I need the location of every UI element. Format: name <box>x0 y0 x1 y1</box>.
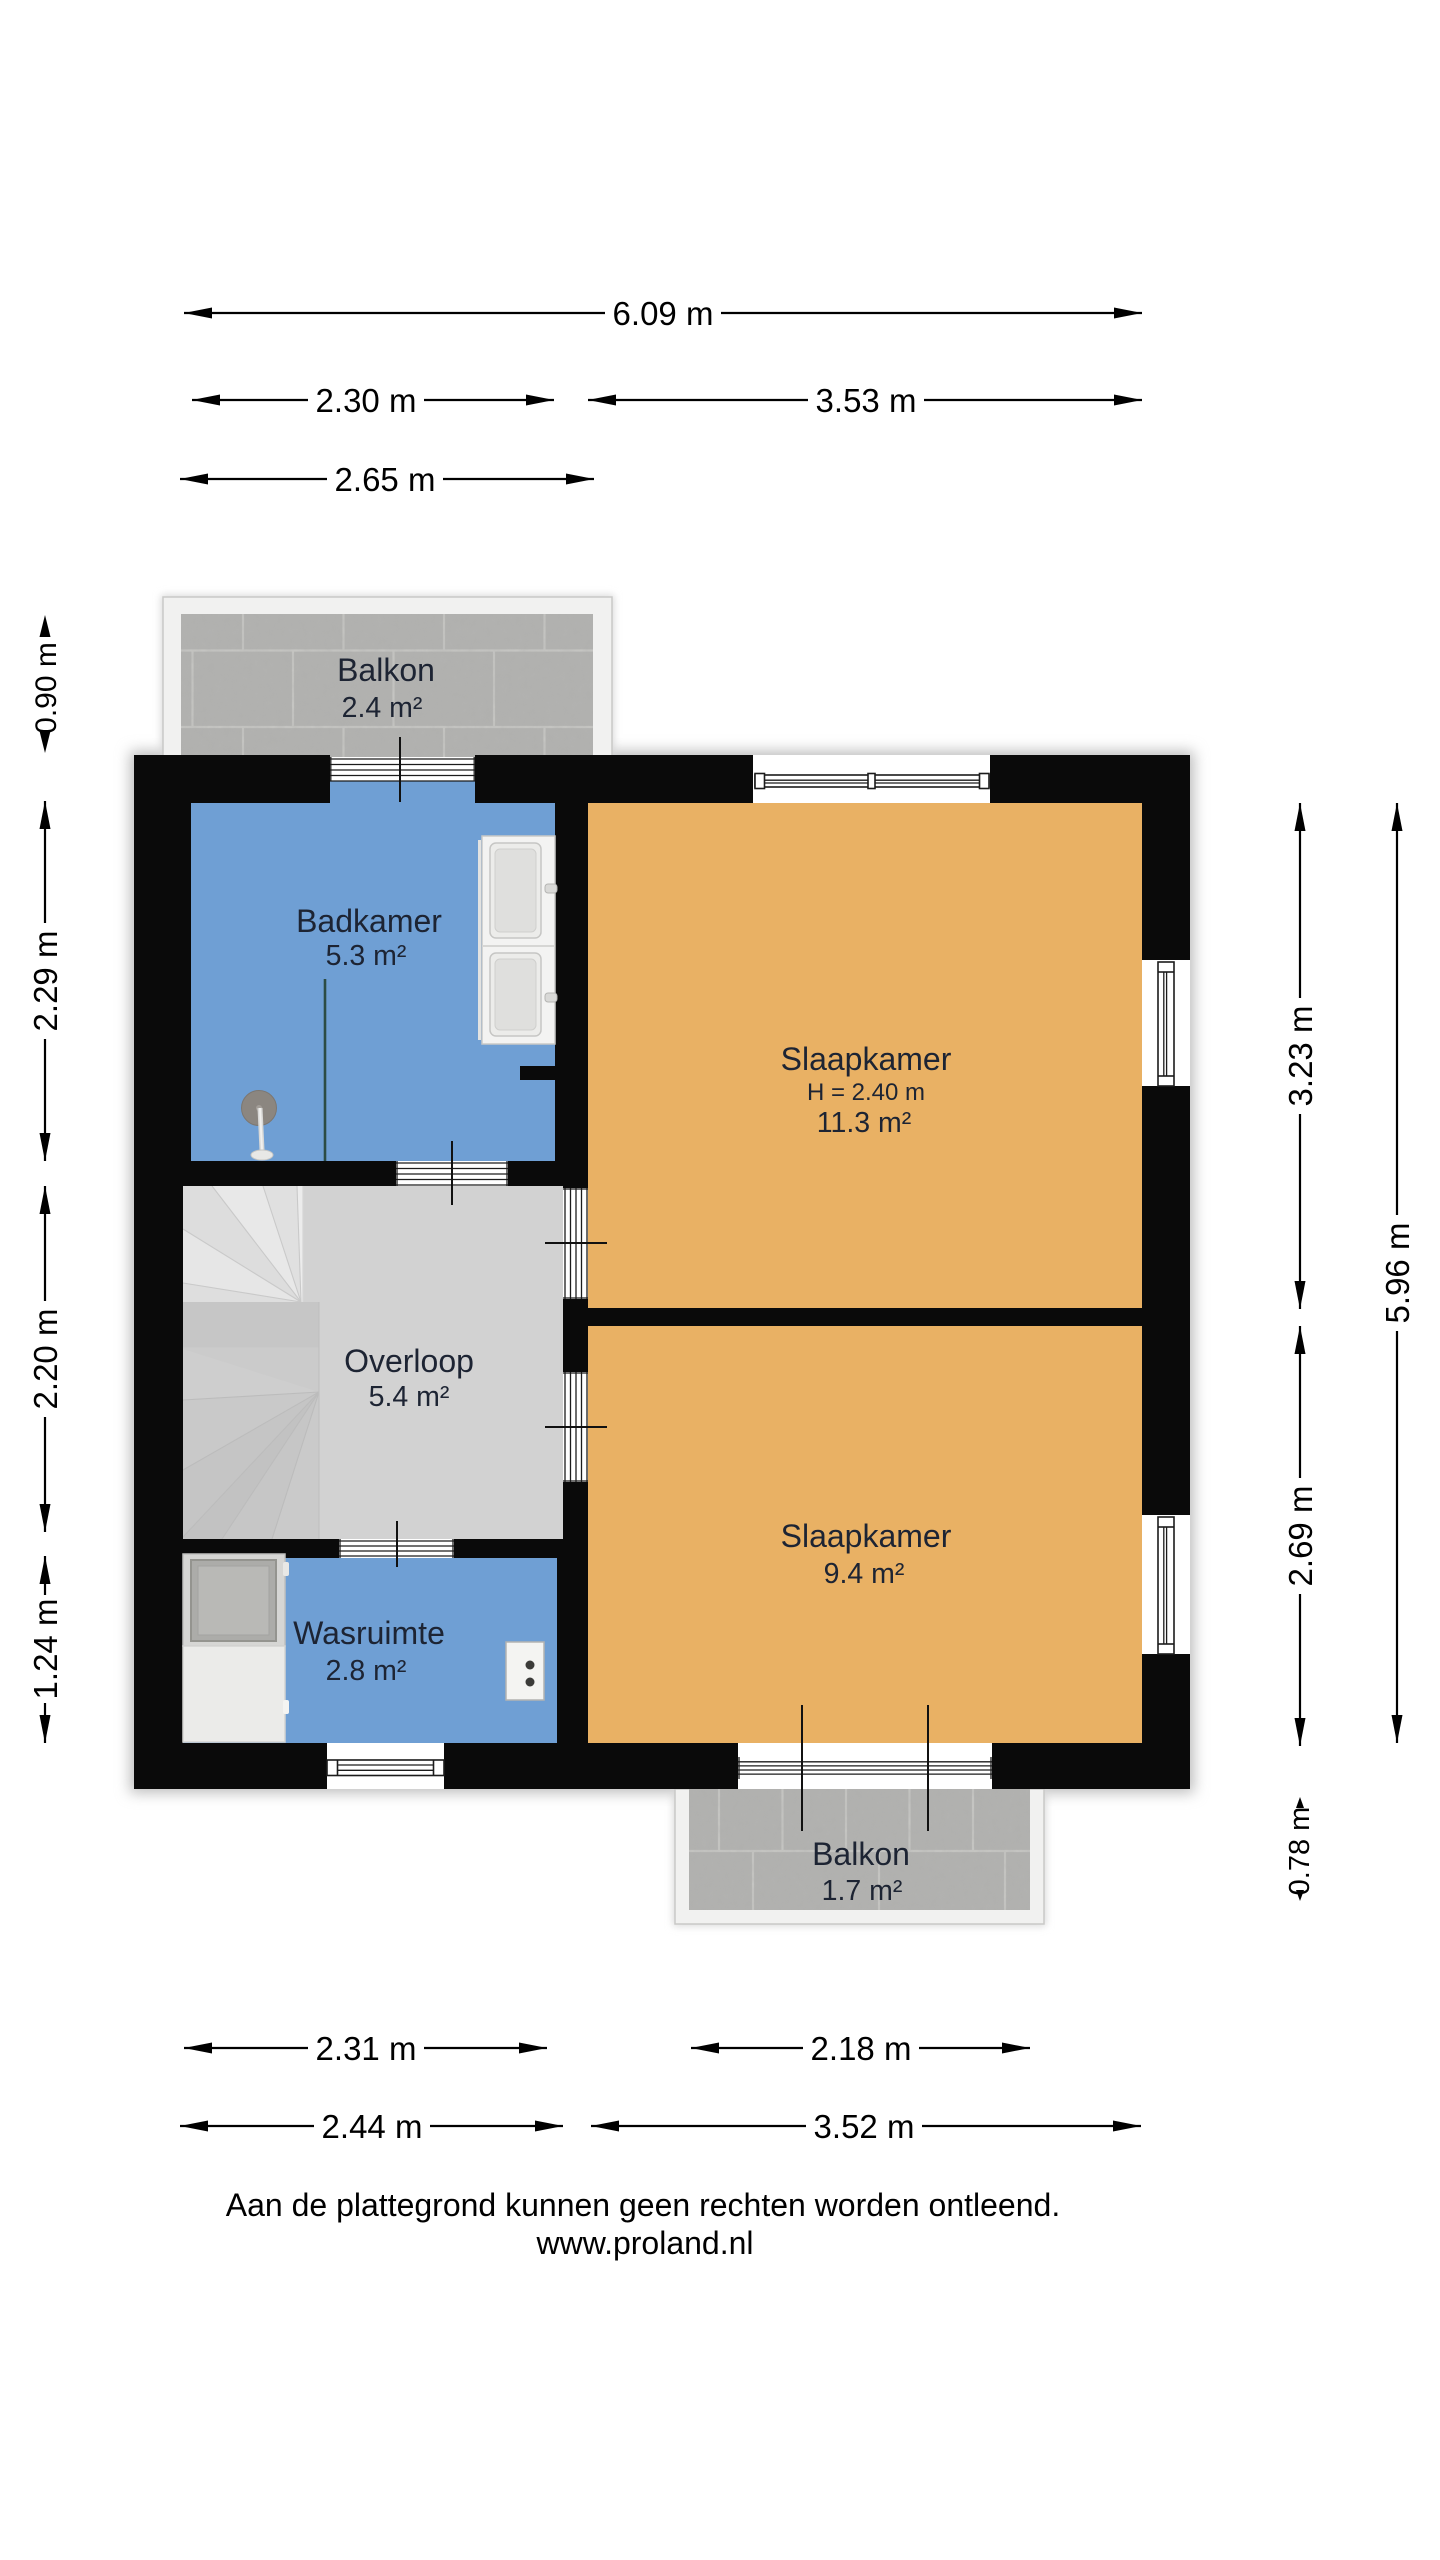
svg-text:2.29 m: 2.29 m <box>27 931 64 1032</box>
svg-text:Badkamer: Badkamer <box>296 903 442 939</box>
svg-text:H = 2.40 m: H = 2.40 m <box>807 1079 925 1106</box>
svg-text:5.96 m: 5.96 m <box>1379 1223 1416 1324</box>
svg-text:1.24 m: 1.24 m <box>27 1599 64 1700</box>
svg-text:3.53 m: 3.53 m <box>816 382 917 419</box>
svg-text:Wasruimte: Wasruimte <box>293 1615 445 1651</box>
svg-text:2.69 m: 2.69 m <box>1282 1486 1319 1587</box>
svg-text:9.4 m²: 9.4 m² <box>824 1558 905 1590</box>
svg-text:2.8 m²: 2.8 m² <box>326 1655 407 1687</box>
svg-text:Aan de plattegrond kunnen geen: Aan de plattegrond kunnen geen rechten w… <box>226 2187 1060 2223</box>
svg-text:2.44 m: 2.44 m <box>322 2108 423 2145</box>
svg-text:0.90 m: 0.90 m <box>30 642 63 734</box>
svg-text:1.7 m²: 1.7 m² <box>822 1875 903 1907</box>
svg-text:Slaapkamer: Slaapkamer <box>781 1518 952 1554</box>
svg-text:Overloop: Overloop <box>344 1343 474 1379</box>
svg-text:11.3 m²: 11.3 m² <box>817 1107 912 1139</box>
svg-text:2.4 m²: 2.4 m² <box>342 692 423 724</box>
svg-text:3.23 m: 3.23 m <box>1282 1006 1319 1107</box>
svg-text:www.proland.nl: www.proland.nl <box>536 2225 754 2261</box>
svg-text:6.09 m: 6.09 m <box>613 295 714 332</box>
svg-text:2.65 m: 2.65 m <box>335 461 436 498</box>
svg-text:5.3 m²: 5.3 m² <box>326 940 407 972</box>
svg-text:Balkon: Balkon <box>812 1836 910 1872</box>
svg-text:5.4 m²: 5.4 m² <box>369 1381 450 1413</box>
svg-text:2.20 m: 2.20 m <box>27 1309 64 1410</box>
svg-text:0.78 m: 0.78 m <box>1284 1807 1316 1896</box>
svg-text:Balkon: Balkon <box>337 652 435 688</box>
svg-text:3.52 m: 3.52 m <box>814 2108 915 2145</box>
svg-text:2.18 m: 2.18 m <box>811 2030 912 2067</box>
svg-text:2.30 m: 2.30 m <box>316 382 417 419</box>
svg-text:2.31 m: 2.31 m <box>316 2030 417 2067</box>
svg-text:Slaapkamer: Slaapkamer <box>781 1041 952 1077</box>
